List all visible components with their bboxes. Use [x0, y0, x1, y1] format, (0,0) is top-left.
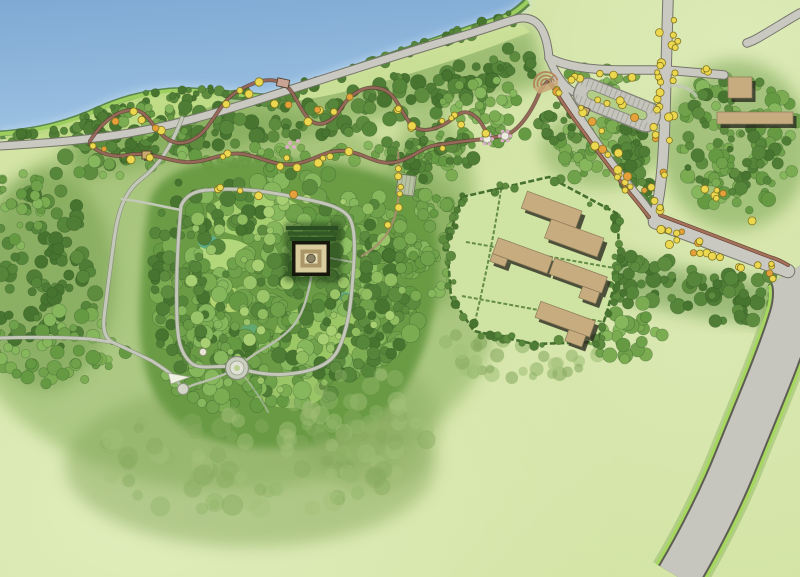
site-plan-map	[0, 0, 800, 577]
mound-summit-circle	[307, 254, 315, 262]
temple-mound	[284, 222, 342, 282]
circular-plaza	[226, 357, 249, 380]
service-building-bar	[717, 112, 793, 124]
service-building-square	[728, 77, 752, 98]
mound-terraces	[286, 226, 338, 241]
small-circle-plaza	[178, 384, 189, 395]
small-dome	[199, 348, 206, 355]
